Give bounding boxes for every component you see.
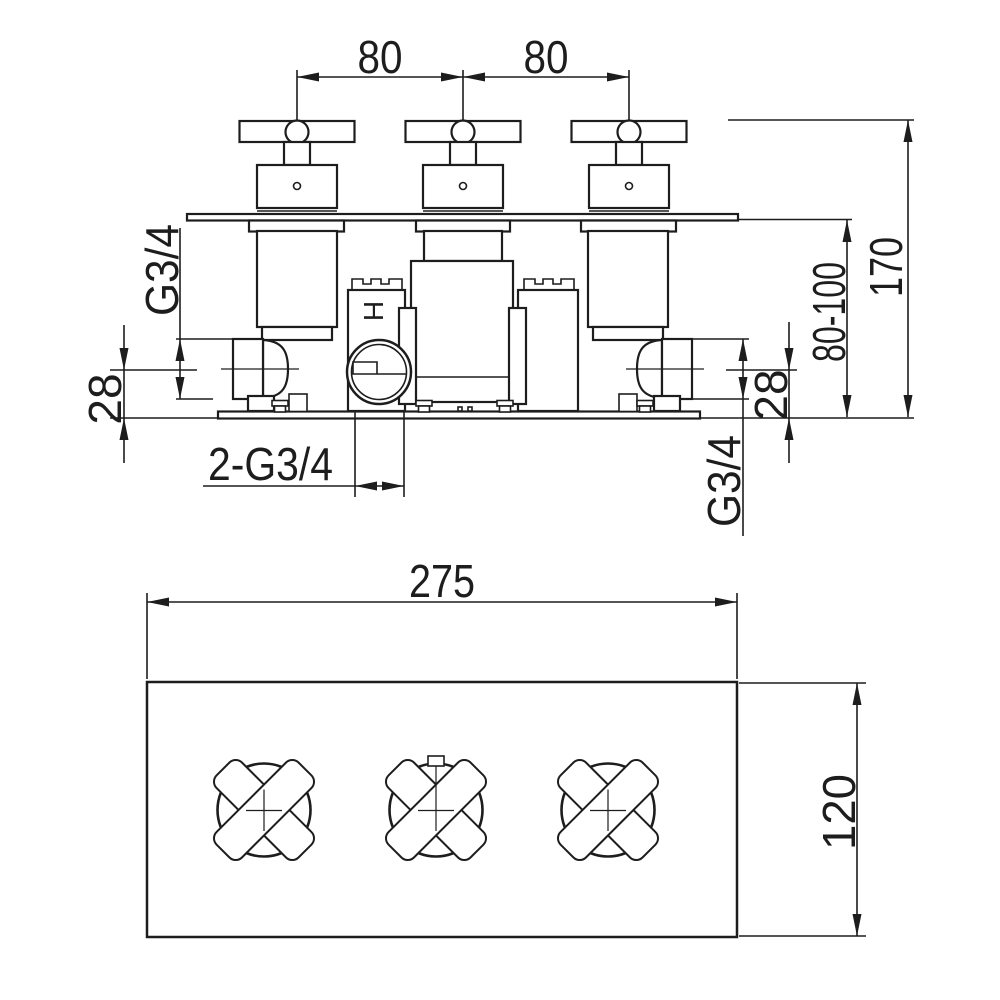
front-elevation-view: H bbox=[79, 31, 914, 536]
dim-right-inlet-thread: G3/4 bbox=[698, 435, 750, 527]
dim-left-inlet-offset: 28 bbox=[79, 373, 131, 424]
valve-body-left bbox=[257, 231, 337, 340]
front-handle-1 bbox=[240, 121, 355, 212]
dim-right-inlet-offset: 28 bbox=[745, 369, 797, 420]
dimension-left-inlet-thread: G3/4 bbox=[136, 224, 235, 399]
plan-handle-1 bbox=[210, 756, 317, 863]
mounting-plate bbox=[218, 412, 700, 419]
technical-drawing-canvas: H bbox=[0, 0, 1000, 1000]
dim-handle-spacing-right: 80 bbox=[524, 31, 569, 83]
dim-install-depth: 80-100 bbox=[803, 262, 855, 362]
dim-plate-width: 275 bbox=[409, 555, 475, 607]
valve-body-right bbox=[588, 231, 668, 340]
drawing-svg: H bbox=[0, 0, 1000, 1000]
outlet-port-circle bbox=[347, 340, 411, 404]
handle-spacing-extension-lines bbox=[297, 70, 629, 122]
dim-bottom-outlets-thread: 2-G3/4 bbox=[208, 438, 333, 490]
dimension-bottom-outlets: 2-G3/4 bbox=[203, 412, 404, 497]
dim-plate-height: 120 bbox=[813, 774, 865, 850]
valve-flanges bbox=[249, 221, 676, 232]
valve-body-center bbox=[411, 231, 513, 402]
dimension-plate-width: 275 bbox=[147, 555, 737, 679]
dim-left-inlet-thread: G3/4 bbox=[136, 224, 188, 316]
dimension-left-inlet-offset: 28 bbox=[79, 325, 218, 463]
front-handle-3 bbox=[572, 121, 687, 212]
dimension-plate-height: 120 bbox=[739, 683, 866, 936]
plan-handle-3 bbox=[554, 756, 661, 863]
plan-handle-2 bbox=[382, 756, 489, 864]
dim-handle-spacing-left: 80 bbox=[358, 31, 403, 83]
hot-marking: H bbox=[358, 301, 389, 321]
front-handle-2 bbox=[406, 121, 521, 212]
handle-index-tab bbox=[428, 756, 444, 766]
dim-overall-height: 170 bbox=[860, 237, 912, 297]
plan-view: 275 120 bbox=[147, 555, 866, 937]
